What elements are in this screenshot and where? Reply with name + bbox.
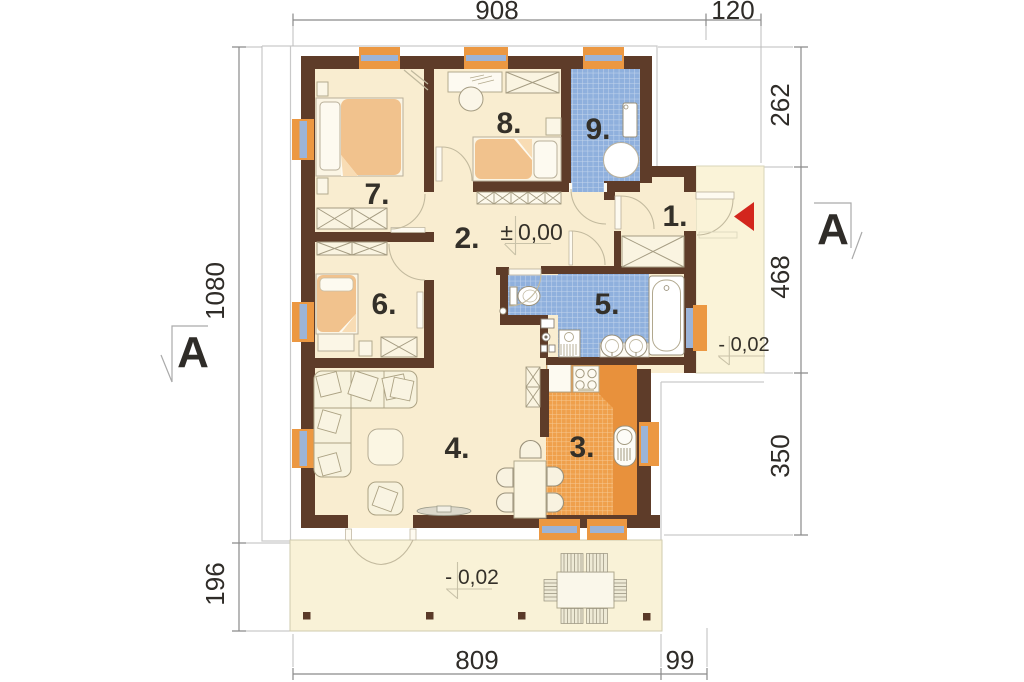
svg-text:±: ± [500, 219, 513, 245]
svg-text:468: 468 [765, 255, 795, 298]
svg-text:4.: 4. [444, 432, 469, 465]
svg-text:5.: 5. [594, 288, 619, 321]
svg-text:0,00: 0,00 [518, 219, 563, 245]
svg-text:99: 99 [666, 645, 695, 675]
svg-text:120: 120 [711, 0, 754, 25]
svg-text:9.: 9. [585, 113, 610, 146]
svg-text:2.: 2. [454, 222, 479, 255]
svg-text:1.: 1. [662, 200, 687, 233]
svg-text:1080: 1080 [200, 262, 230, 320]
svg-text:7.: 7. [364, 178, 389, 211]
svg-text:- 0,02: - 0,02 [718, 334, 769, 356]
svg-text:350: 350 [765, 434, 795, 477]
svg-text:809: 809 [455, 645, 498, 675]
svg-text:908: 908 [475, 0, 518, 25]
svg-text:8.: 8. [496, 107, 521, 140]
svg-text:6.: 6. [371, 288, 396, 321]
svg-text:262: 262 [765, 83, 795, 126]
svg-text:A: A [817, 205, 849, 254]
svg-text:- 0,02: - 0,02 [445, 566, 499, 589]
svg-text:A: A [177, 328, 209, 377]
svg-text:3.: 3. [569, 431, 594, 464]
svg-text:196: 196 [200, 562, 230, 605]
